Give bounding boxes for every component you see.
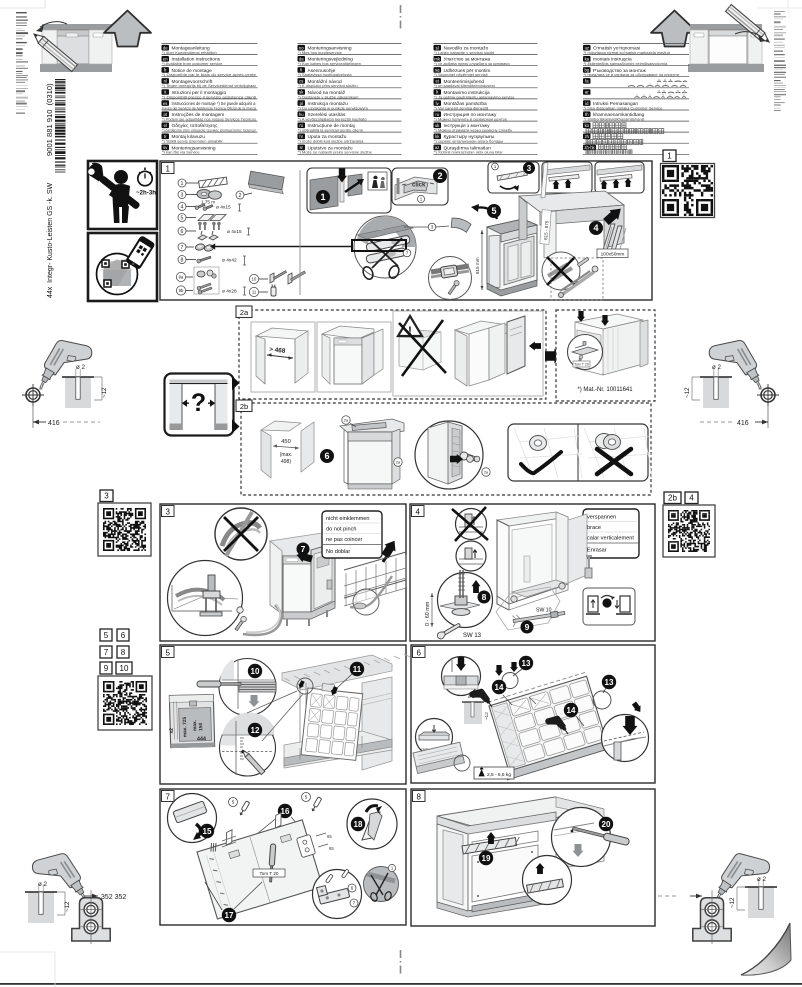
svg-text:416: 416 [48,420,60,427]
svg-text:ø 2: ø 2 [757,876,766,883]
svg-text:7: 7 [104,648,109,657]
svg-text:11: 11 [353,665,362,674]
svg-text:10: 10 [251,667,260,676]
svg-text:450: 450 [281,439,291,445]
svg-text:9a: 9a [179,275,184,280]
svg-text:3: 3 [104,492,109,501]
svg-text:8: 8 [416,793,421,802]
svg-text:4: 4 [593,223,598,233]
svg-text:ø 4x15: ø 4x15 [216,205,231,211]
svg-text:6: 6 [121,631,126,640]
svg-text:*) Mat.-Nr. 10011641: *) Mat.-Nr. 10011641 [577,387,633,393]
svg-text:13: 13 [522,659,531,668]
svg-text:ø 4x28: ø 4x28 [222,289,237,295]
svg-text:65: 65 [327,834,332,839]
svg-text:12: 12 [251,726,260,735]
svg-text:SW 10: SW 10 [536,608,552,614]
svg-text:max. 725: max. 725 [182,717,189,738]
svg-text:20: 20 [602,820,611,829]
svg-text:4: 4 [181,204,184,210]
svg-text:2a: 2a [240,308,249,317]
svg-text:2: 2 [239,193,242,199]
svg-text:3: 3 [431,225,434,230]
svg-text:zh: zh [585,134,590,139]
svg-text:9: 9 [525,622,530,632]
svg-text:2b: 2b [240,402,248,411]
svg-text:8: 8 [121,648,126,657]
svg-text:7: 7 [406,251,409,256]
svg-text:6: 6 [324,451,329,461]
svg-text:15: 15 [203,827,212,836]
svg-text:0 - 60 mm: 0 - 60 mm [425,601,431,626]
svg-text:?: ? [191,389,206,417]
svg-text:10: 10 [120,664,129,673]
svg-text:2: 2 [437,171,442,181]
svg-text:verspannen: verspannen [587,515,616,521]
svg-text:18: 18 [354,820,363,829]
svg-text:zh-hk: zh-hk [584,145,595,150]
svg-text:3: 3 [181,192,184,198]
svg-text:14: 14 [567,706,576,715]
svg-text:8: 8 [181,257,184,263]
svg-text:19: 19 [482,854,491,863]
svg-text:444: 444 [197,736,206,742]
svg-text:~2h-3h: ~2h-3h [136,190,156,197]
svg-text:1: 1 [667,152,672,161]
svg-text:SW 13: SW 13 [463,633,482,639]
svg-text:2b: 2b [668,494,677,503]
svg-text:5: 5 [491,206,496,216]
svg-text:No doblar: No doblar [326,549,350,555]
svg-text:~12: ~12 [64,901,71,912]
svg-text:brace: brace [587,525,601,531]
svg-text:498): 498) [281,459,291,465]
svg-text:ko: ko [585,123,590,128]
svg-text:10: 10 [252,277,257,282]
svg-text:nicht einklemmen: nicht einklemmen [326,516,370,522]
svg-text:ø 2: ø 2 [712,364,721,371]
svg-text:16: 16 [281,807,290,816]
svg-text:do not pinch: do not pinch [326,527,356,533]
svg-text:*) on saadaval klienditeenindu: *) on saadaval klienditeenindusest [434,83,496,88]
svg-text:150: 150 [198,722,204,730]
svg-text:calar verticalement: calar verticalement [587,536,634,542]
svg-text:ø 2: ø 2 [38,881,47,888]
svg-text:ø 4x15: ø 4x15 [227,229,242,235]
svg-text:2,5 - 6,5 kg: 2,5 - 6,5 kg [487,772,511,778]
svg-text:~12: ~12 [684,387,691,398]
svg-text:7: 7 [165,793,170,802]
svg-text:5: 5 [165,649,170,658]
svg-text:max.: max. [193,720,198,731]
svg-text:~12: ~12 [101,387,108,398]
svg-text:ne pas coincer: ne pas coincer [326,537,363,543]
svg-text:click: click [412,183,426,189]
svg-text:ø 4x42: ø 4x42 [222,258,237,264]
svg-text:9b: 9b [179,288,184,293]
svg-text:1: 1 [165,165,170,174]
svg-text:13: 13 [605,678,614,687]
svg-text:6: 6 [181,229,184,235]
svg-text:ø 2: ø 2 [468,694,475,699]
svg-text:Torx T 20: Torx T 20 [574,363,589,367]
svg-text:7: 7 [181,245,184,251]
svg-text:1: 1 [320,192,325,202]
svg-text:9: 9 [104,664,109,673]
svg-text:3: 3 [527,164,532,173]
svg-text:*) K dispozici přes servisní s: *) K dispozici přes servisní službu [298,83,358,88]
svg-text:100x50mm: 100x50mm [601,251,625,257]
svg-text:Enrasar: Enrasar [587,548,607,554]
svg-text:(max.: (max. [280,452,293,458]
svg-text:~12: ~12 [484,712,489,720]
svg-text:4: 4 [689,494,694,503]
svg-text:x2: x2 [169,728,175,734]
svg-text:6: 6 [416,649,421,658]
svg-text:~12: ~12 [729,897,736,908]
svg-text:5: 5 [232,800,235,805]
svg-text:14: 14 [495,683,504,692]
svg-text:5: 5 [104,631,109,640]
svg-text:4: 4 [415,508,420,517]
svg-text:9001 881 910 (0310): 9001 881 910 (0310) [45,83,54,156]
svg-text:*) Tegen meerprijs bij de Serv: *) Tegen meerprijs bij de Servicedienst … [162,83,257,88]
svg-text:44x Integr- Kusto-Leisten GS: 44x Integr- Kusto-Leisten GS -k. SW [47,182,54,298]
svg-text:17: 17 [225,911,234,920]
svg-text:65: 65 [329,846,334,851]
svg-text:1,75 m: 1,75 m [201,200,215,205]
svg-text:1: 1 [181,181,184,187]
svg-text:3: 3 [165,508,170,517]
svg-text:815 mm: 815 mm [475,257,480,274]
svg-text:Torx T 20: Torx T 20 [260,871,279,876]
svg-text:352 352: 352 352 [101,894,126,901]
svg-text:5: 5 [305,795,308,800]
svg-text:5: 5 [181,215,184,221]
svg-text:ar: ar [585,90,589,95]
svg-text:416: 416 [737,420,749,427]
svg-text:11: 11 [252,290,257,295]
svg-text:ø 2: ø 2 [76,364,85,371]
svg-text:8: 8 [482,592,487,602]
